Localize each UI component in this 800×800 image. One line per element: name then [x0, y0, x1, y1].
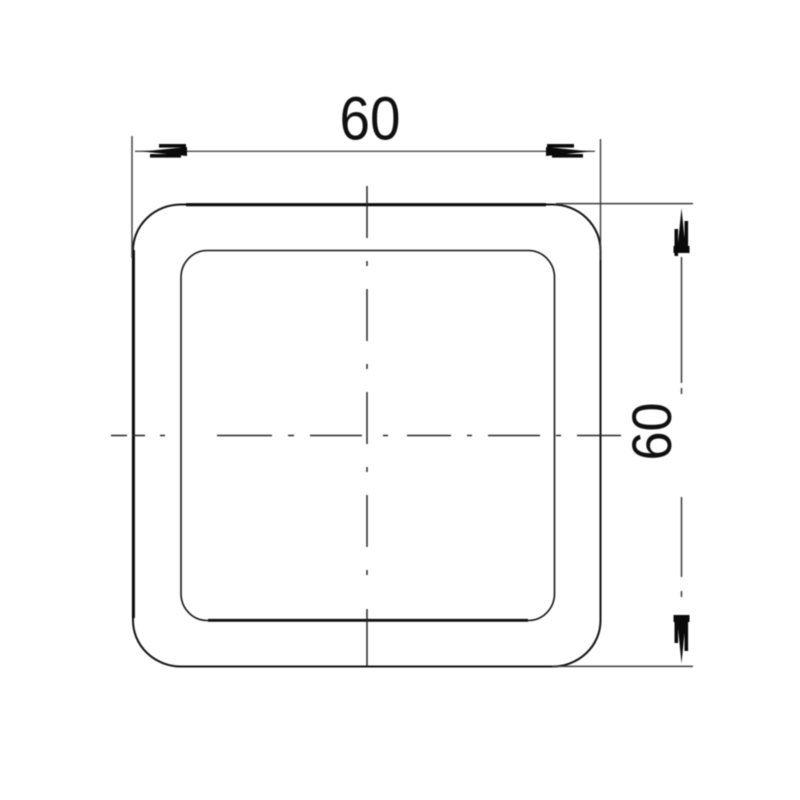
svg-text:60: 60 — [620, 403, 683, 461]
svg-text:60: 60 — [340, 84, 401, 152]
